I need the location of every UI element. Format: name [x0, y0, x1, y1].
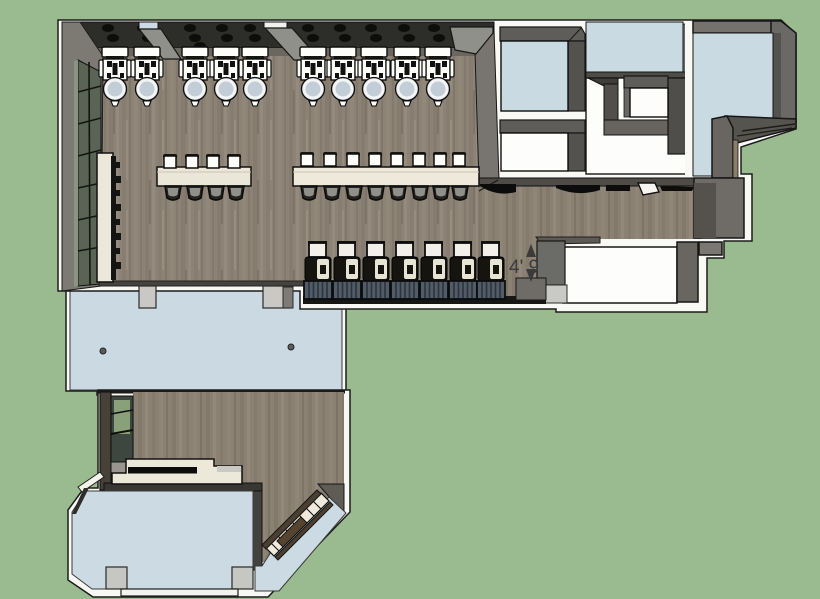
- svg-text:4' 9: 4' 9: [509, 257, 539, 278]
